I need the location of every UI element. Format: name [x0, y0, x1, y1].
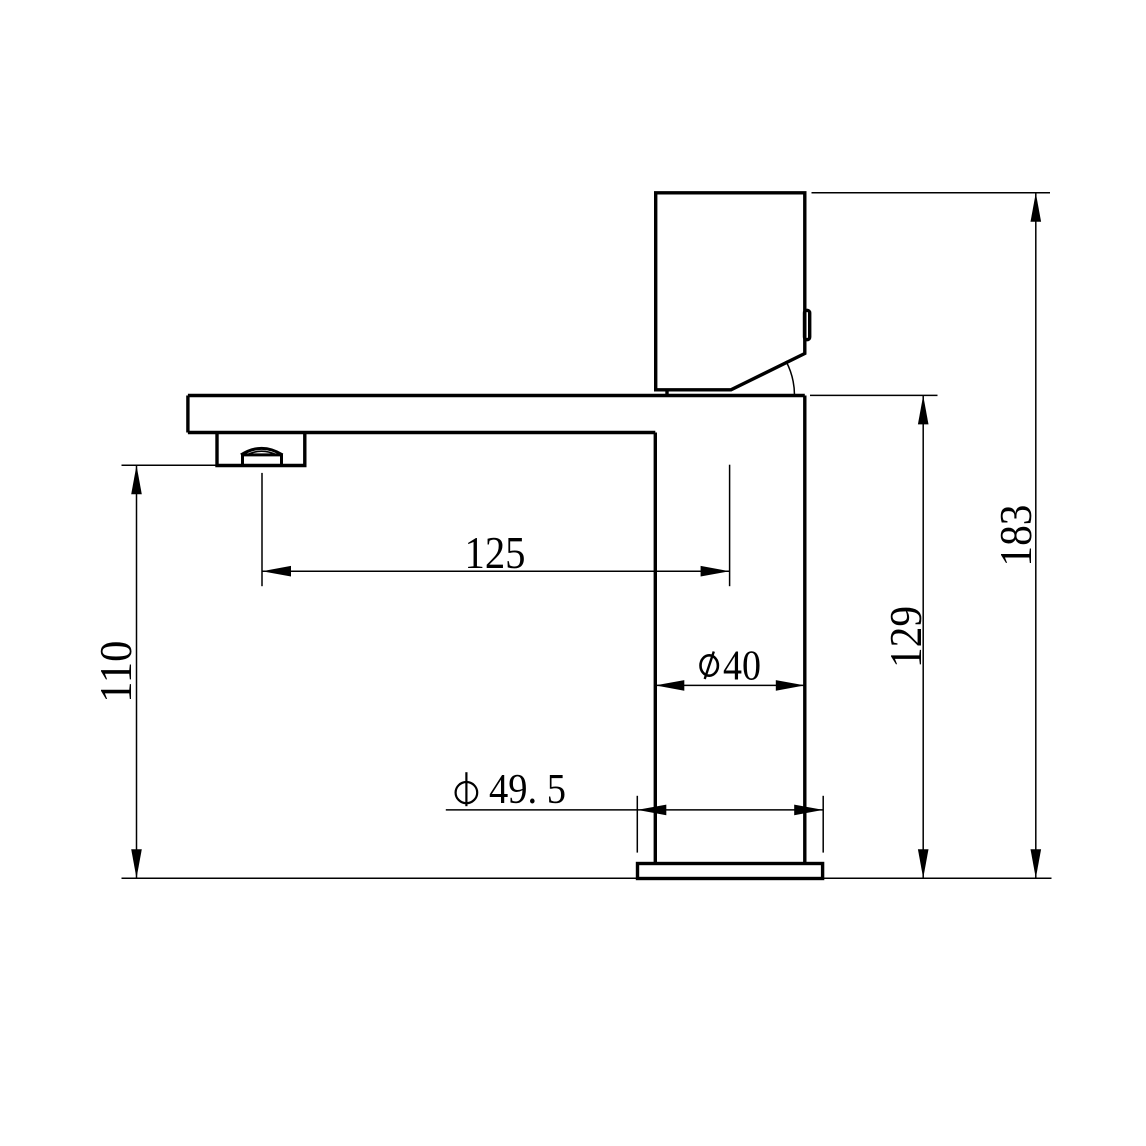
svg-text:40: 40	[723, 644, 761, 690]
svg-text:129: 129	[880, 606, 931, 668]
svg-text:49. 5: 49. 5	[489, 767, 566, 813]
svg-text:110: 110	[90, 641, 141, 703]
svg-text:125: 125	[465, 527, 526, 578]
svg-text:183: 183	[990, 505, 1041, 567]
